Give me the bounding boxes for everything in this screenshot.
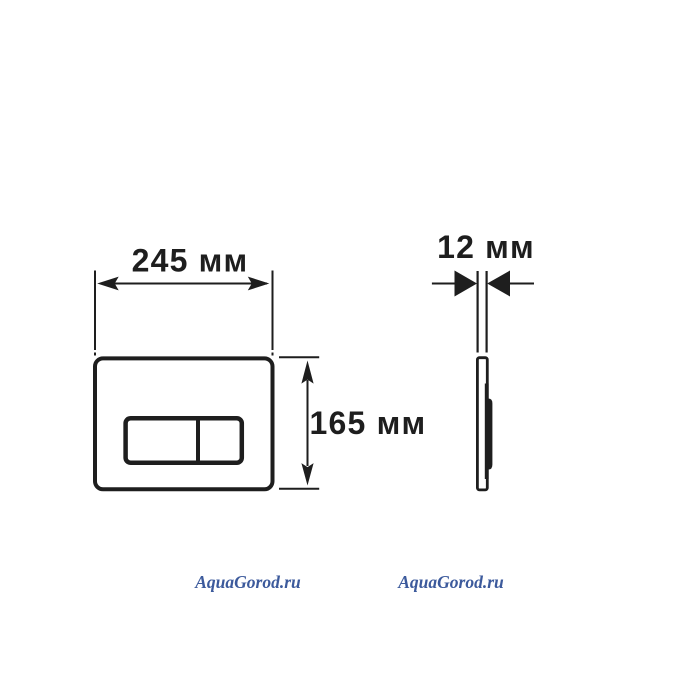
svg-text:AquaGorod.ru: AquaGorod.ru	[194, 572, 301, 592]
svg-text:165 мм: 165 мм	[310, 405, 427, 441]
svg-text:AquaGorod.ru: AquaGorod.ru	[397, 572, 504, 592]
svg-text:245 мм: 245 мм	[132, 243, 249, 279]
svg-text:12 мм: 12 мм	[437, 229, 535, 265]
